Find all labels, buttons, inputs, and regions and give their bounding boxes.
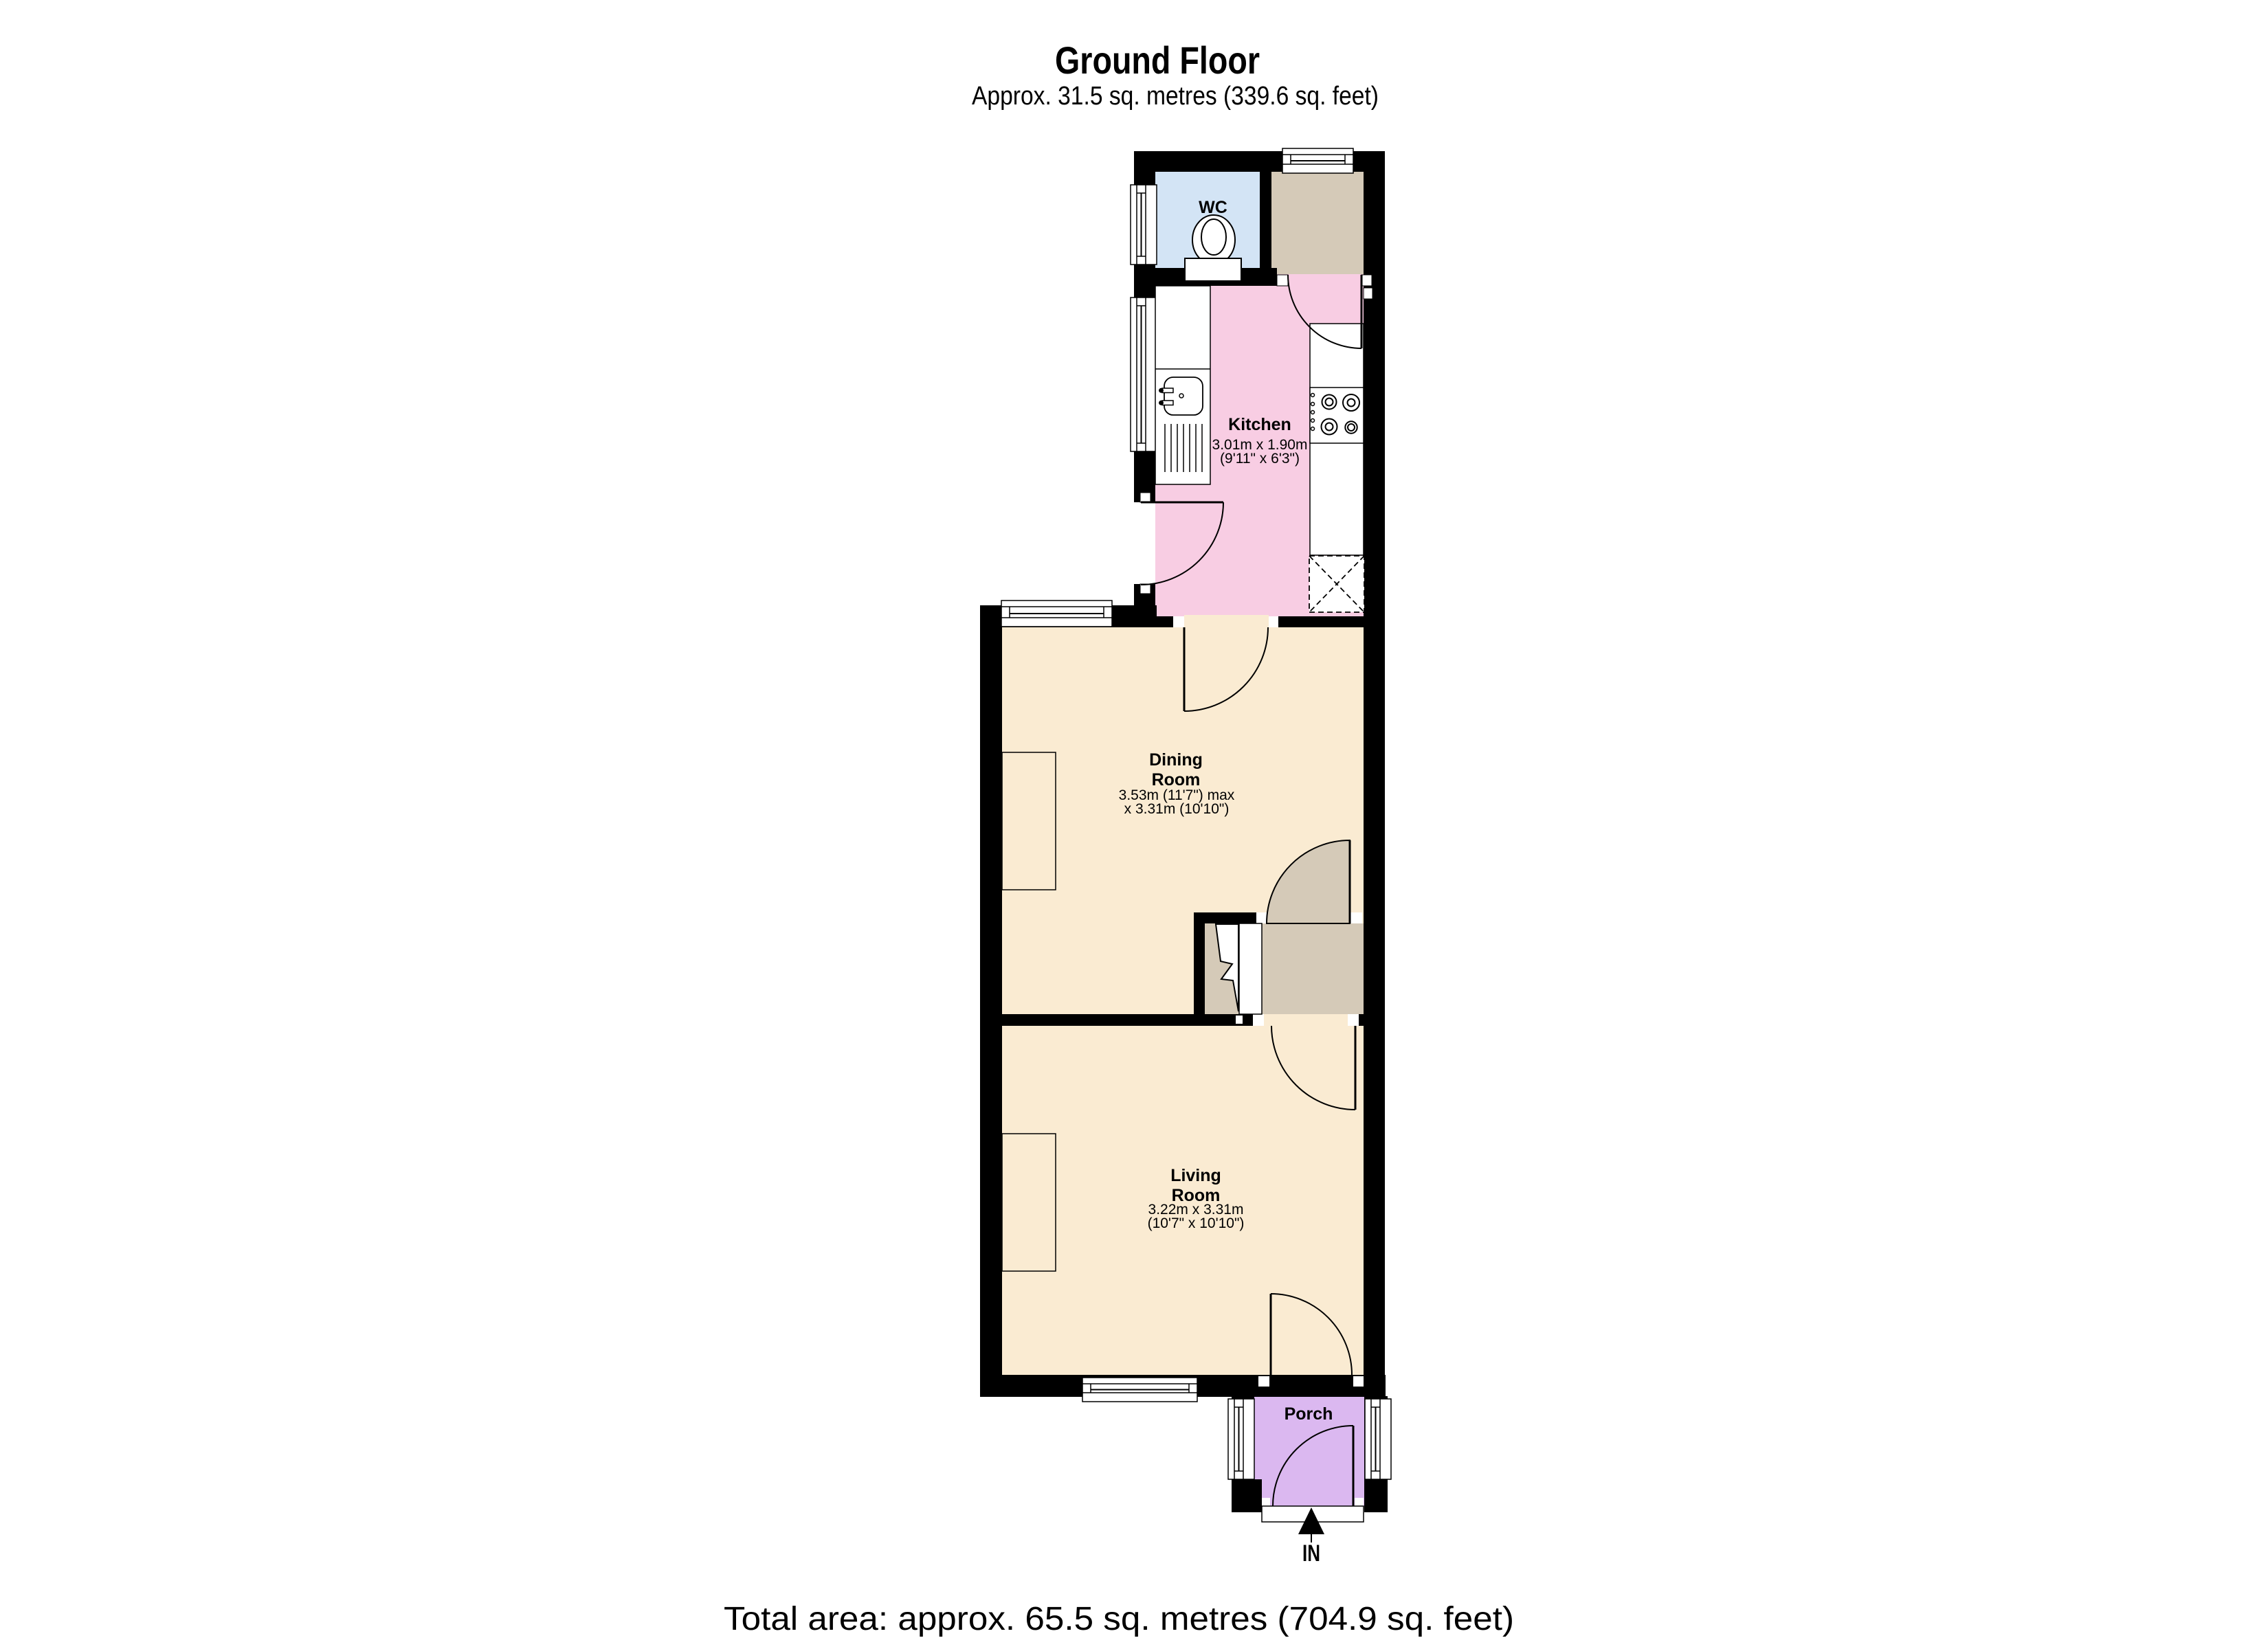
svg-text:Porch: Porch [1285,1404,1333,1424]
svg-text:IN: IN [1302,1540,1320,1567]
svg-text:Dining: Dining [1149,750,1203,770]
svg-text:(10'7" x 10'10"): (10'7" x 10'10") [1148,1215,1245,1231]
svg-text:Total area: approx. 65.5 sq. m: Total area: approx. 65.5 sq. metres (704… [724,1601,1514,1637]
svg-text:x 3.31m (10'10"): x 3.31m (10'10") [1124,801,1230,817]
svg-text:Living: Living [1170,1166,1221,1185]
svg-text:(9'11" x 6'3"): (9'11" x 6'3") [1220,451,1300,467]
svg-text:Approx. 31.5 sq. metres (339.6: Approx. 31.5 sq. metres (339.6 sq. feet) [972,82,1379,111]
svg-text:Ground Floor: Ground Floor [1055,38,1260,82]
svg-text:WC: WC [1199,198,1227,217]
svg-text:Kitchen: Kitchen [1228,415,1291,434]
svg-text:Room: Room [1152,770,1201,789]
